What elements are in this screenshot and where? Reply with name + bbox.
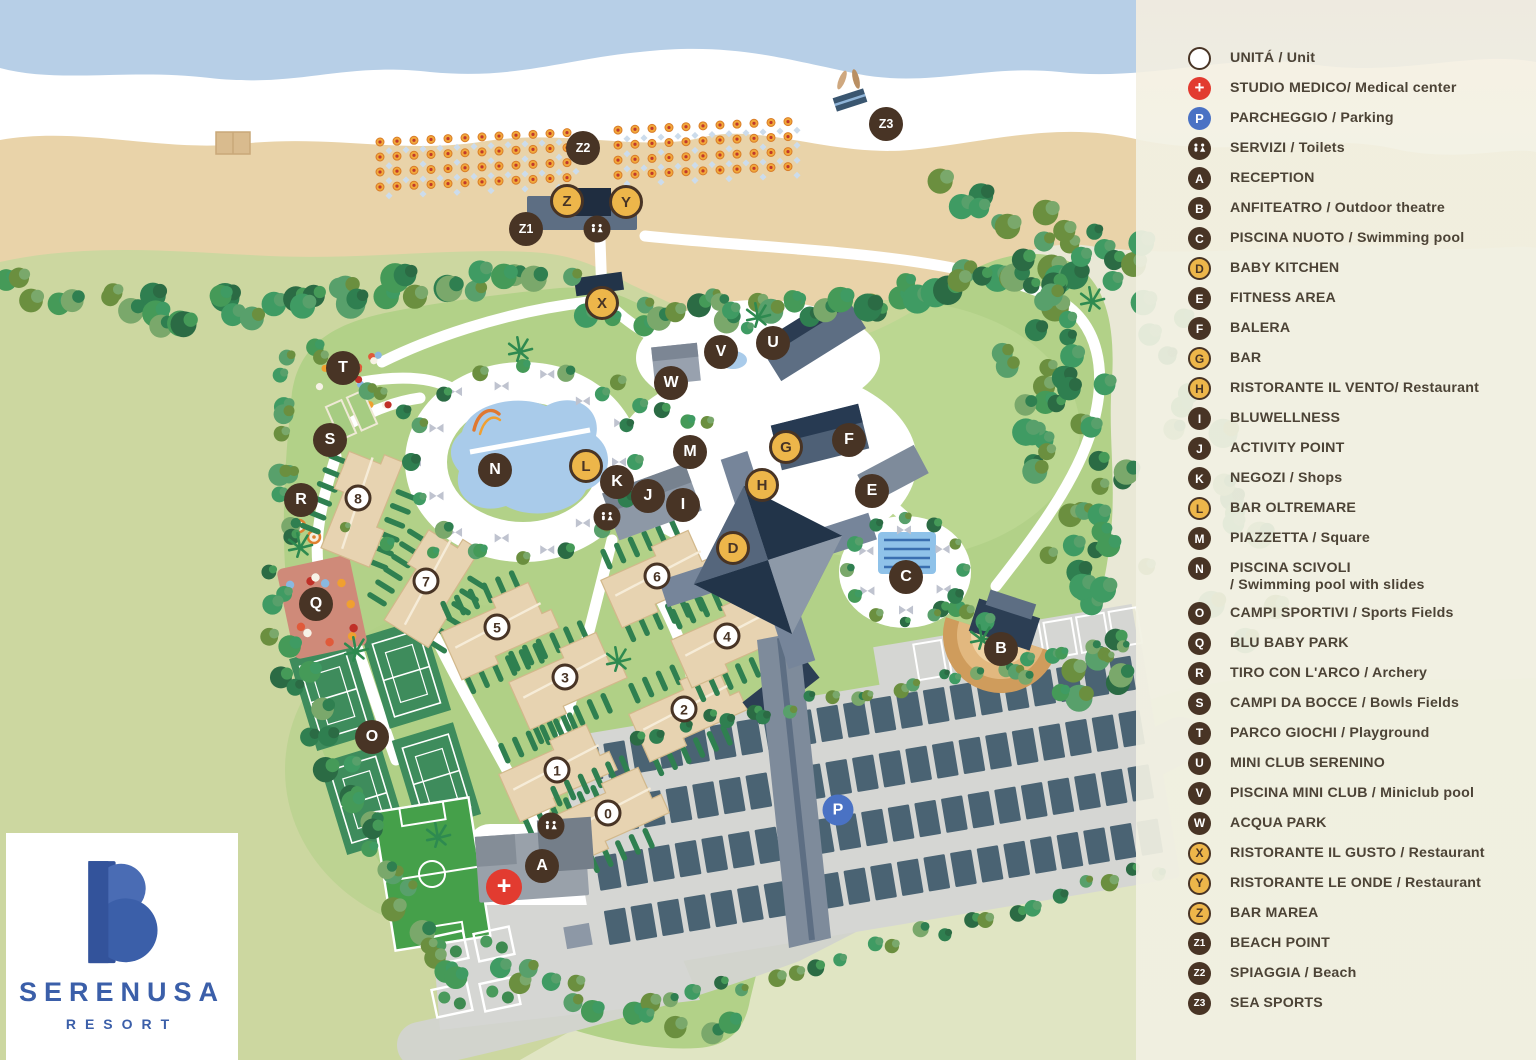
legend-rows: UNITÁ / Unit+STUDIO MEDICO/ Medical cent… xyxy=(1188,47,1526,1015)
legend-symbol-Y: Y xyxy=(1188,872,1211,895)
legend-row: Z3SEA SPORTS xyxy=(1188,992,1526,1015)
legend-symbol-Z3: Z3 xyxy=(1188,992,1211,1015)
legend-label: BAR MAREA xyxy=(1230,902,1319,922)
logo-subtitle-text: RESORT xyxy=(66,1016,178,1032)
legend-label: PISCINA SCIVOLI/ Swimming pool with slid… xyxy=(1230,557,1425,595)
legend-symbol-parking-icon: P xyxy=(1188,107,1211,130)
legend-label: BLU BABY PARK xyxy=(1230,632,1349,652)
legend-label: BABY KITCHEN xyxy=(1230,257,1339,277)
legend-label: RISTORANTE IL VENTO/ Restaurant xyxy=(1230,377,1479,397)
legend-symbol-D: D xyxy=(1188,257,1211,280)
legend-row: JACTIVITY POINT xyxy=(1188,437,1526,460)
legend-label: PIAZZETTA / Square xyxy=(1230,527,1370,547)
legend-label: CAMPI DA BOCCE / Bowls Fields xyxy=(1230,692,1459,712)
legend-symbol-Z1: Z1 xyxy=(1188,932,1211,955)
legend-label: UNITÁ / Unit xyxy=(1230,47,1315,67)
legend-label: RISTORANTE IL GUSTO / Restaurant xyxy=(1230,842,1485,862)
legend-label: BLUWELLNESS xyxy=(1230,407,1340,427)
legend-row: PPARCHEGGIO / Parking xyxy=(1188,107,1526,130)
legend-row: KNEGOZI / Shops xyxy=(1188,467,1526,490)
legend-symbol-J: J xyxy=(1188,437,1211,460)
legend-label: SERVIZI / Toilets xyxy=(1230,137,1345,157)
legend-row: BANFITEATRO / Outdoor theatre xyxy=(1188,197,1526,220)
legend-label: BEACH POINT xyxy=(1230,932,1330,952)
legend-row: EFITNESS AREA xyxy=(1188,287,1526,310)
logo-b-icon xyxy=(81,861,163,965)
legend-symbol-unit-icon xyxy=(1188,47,1211,70)
legend-symbol-W: W xyxy=(1188,812,1211,835)
legend-label: SEA SPORTS xyxy=(1230,992,1323,1012)
legend-row: UMINI CLUB SERENINO xyxy=(1188,752,1526,775)
legend-label: RISTORANTE LE ONDE / Restaurant xyxy=(1230,872,1481,892)
legend-row: Z2SPIAGGIA / Beach xyxy=(1188,962,1526,985)
legend-row: WACQUA PARK xyxy=(1188,812,1526,835)
legend-symbol-A: A xyxy=(1188,167,1211,190)
resort-map: Z2ZYZ1XZ3TSRNQWVUMLKJIGHDFECBOA+P8756342… xyxy=(0,0,1536,1060)
legend-symbol-C: C xyxy=(1188,227,1211,250)
legend-label: NEGOZI / Shops xyxy=(1230,467,1342,487)
legend-symbol-O: O xyxy=(1188,602,1211,625)
legend-symbol-S: S xyxy=(1188,692,1211,715)
legend-symbol-Z2: Z2 xyxy=(1188,962,1211,985)
legend-symbol-B: B xyxy=(1188,197,1211,220)
legend-row: UNITÁ / Unit xyxy=(1188,47,1526,70)
resort-logo: SERENUSA RESORT xyxy=(6,833,238,1060)
legend-row: NPISCINA SCIVOLI/ Swimming pool with sli… xyxy=(1188,557,1526,595)
legend-label: RECEPTION xyxy=(1230,167,1315,187)
legend-label: ACQUA PARK xyxy=(1230,812,1327,832)
legend-label: BAR OLTREMARE xyxy=(1230,497,1356,517)
legend-symbol-H: H xyxy=(1188,377,1211,400)
legend-symbol-I: I xyxy=(1188,407,1211,430)
legend-symbol-U: U xyxy=(1188,752,1211,775)
legend-symbol-N: N xyxy=(1188,557,1211,580)
legend-symbol-M: M xyxy=(1188,527,1211,550)
legend-row: VPISCINA MINI CLUB / Miniclub pool xyxy=(1188,782,1526,805)
legend-label: PISCINA NUOTO / Swimming pool xyxy=(1230,227,1464,247)
legend-symbol-medical-icon: + xyxy=(1188,77,1211,100)
legend-label: BALERA xyxy=(1230,317,1290,337)
legend-row: HRISTORANTE IL VENTO/ Restaurant xyxy=(1188,377,1526,400)
legend-row: +STUDIO MEDICO/ Medical center xyxy=(1188,77,1526,100)
legend-row: IBLUWELLNESS xyxy=(1188,407,1526,430)
legend-row: SERVIZI / Toilets xyxy=(1188,137,1526,160)
legend-symbol-K: K xyxy=(1188,467,1211,490)
legend-label: FITNESS AREA xyxy=(1230,287,1336,307)
legend-label: PARCHEGGIO / Parking xyxy=(1230,107,1394,127)
legend-label-line2: / Swimming pool with slides xyxy=(1230,577,1425,594)
legend-symbol-V: V xyxy=(1188,782,1211,805)
legend-row: DBABY KITCHEN xyxy=(1188,257,1526,280)
toilets-icon xyxy=(1192,143,1207,154)
legend-symbol-G: G xyxy=(1188,347,1211,370)
logo-brand-text: SERENUSA xyxy=(19,977,225,1008)
legend-symbol-F: F xyxy=(1188,317,1211,340)
legend-symbol-R: R xyxy=(1188,662,1211,685)
legend-symbol-X: X xyxy=(1188,842,1211,865)
legend-symbol-toilets-icon xyxy=(1188,137,1211,160)
legend-row: OCAMPI SPORTIVI / Sports Fields xyxy=(1188,602,1526,625)
legend-label: MINI CLUB SERENINO xyxy=(1230,752,1385,772)
legend-symbol-Q: Q xyxy=(1188,632,1211,655)
legend-row: TPARCO GIOCHI / Playground xyxy=(1188,722,1526,745)
legend-row: QBLU BABY PARK xyxy=(1188,632,1526,655)
legend-row: YRISTORANTE LE ONDE / Restaurant xyxy=(1188,872,1526,895)
legend-row: LBAR OLTREMARE xyxy=(1188,497,1526,520)
legend-symbol-L: L xyxy=(1188,497,1211,520)
legend-row: Z1BEACH POINT xyxy=(1188,932,1526,955)
legend-panel: UNITÁ / Unit+STUDIO MEDICO/ Medical cent… xyxy=(1136,0,1536,1060)
legend-symbol-T: T xyxy=(1188,722,1211,745)
legend-row: RTIRO CON L'ARCO / Archery xyxy=(1188,662,1526,685)
legend-label: SPIAGGIA / Beach xyxy=(1230,962,1356,982)
legend-label: PARCO GIOCHI / Playground xyxy=(1230,722,1429,742)
legend-label: CAMPI SPORTIVI / Sports Fields xyxy=(1230,602,1454,622)
legend-label: ANFITEATRO / Outdoor theatre xyxy=(1230,197,1445,217)
legend-row: FBALERA xyxy=(1188,317,1526,340)
legend-label: STUDIO MEDICO/ Medical center xyxy=(1230,77,1457,97)
legend-row: MPIAZZETTA / Square xyxy=(1188,527,1526,550)
legend-symbol-Z: Z xyxy=(1188,902,1211,925)
legend-row: ZBAR MAREA xyxy=(1188,902,1526,925)
legend-symbol-E: E xyxy=(1188,287,1211,310)
legend-row: GBAR xyxy=(1188,347,1526,370)
legend-label: TIRO CON L'ARCO / Archery xyxy=(1230,662,1427,682)
legend-label: ACTIVITY POINT xyxy=(1230,437,1344,457)
legend-label: PISCINA MINI CLUB / Miniclub pool xyxy=(1230,782,1474,802)
legend-row: SCAMPI DA BOCCE / Bowls Fields xyxy=(1188,692,1526,715)
legend-label: BAR xyxy=(1230,347,1261,367)
legend-row: XRISTORANTE IL GUSTO / Restaurant xyxy=(1188,842,1526,865)
legend-row: CPISCINA NUOTO / Swimming pool xyxy=(1188,227,1526,250)
legend-row: ARECEPTION xyxy=(1188,167,1526,190)
